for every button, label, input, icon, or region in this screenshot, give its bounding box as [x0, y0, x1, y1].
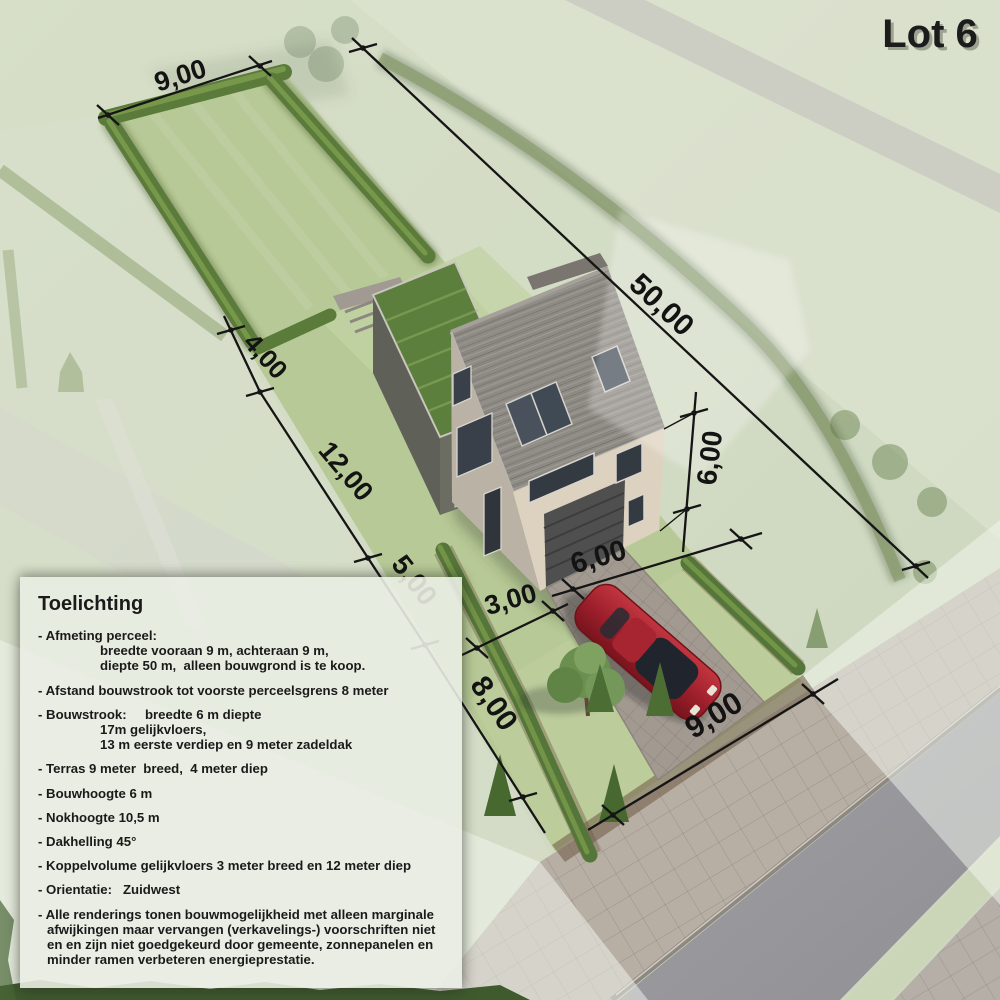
legend-item-terras: - Terras 9 meter breed, 4 meter diep — [38, 761, 444, 776]
dim-label-building-height: 6,00 — [691, 429, 728, 487]
legend-line: - Bouwstrook: breedte 6 m diepte — [38, 707, 444, 722]
legend-line: - Orientatie: Zuidwest — [38, 882, 444, 897]
legend-item-bouwhoogte: - Bouwhoogte 6 m — [38, 786, 444, 801]
legend-line: - Afstand bouwstrook tot voorste perceel… — [38, 683, 444, 698]
info-box-title: Toelichting — [38, 593, 444, 615]
legend-line: - Bouwhoogte 6 m — [38, 786, 444, 801]
legend-line: - Dakhelling 45° — [38, 834, 444, 849]
legend-line: 17m gelijkvloers, — [100, 722, 444, 737]
legend-item-orientatie: - Orientatie: Zuidwest — [38, 882, 444, 897]
legend-item-dakhelling: - Dakhelling 45° — [38, 834, 444, 849]
legend-item-bouwstrook: - Bouwstrook: breedte 6 m diepte 17m gel… — [38, 707, 444, 753]
door-left — [484, 487, 501, 556]
legend-item-nokhoogte: - Nokhoogte 10,5 m — [38, 810, 444, 825]
legend-item-afstand: - Afstand bouwstrook tot voorste perceel… — [38, 683, 444, 698]
legend-line: - Nokhoogte 10,5 m — [38, 810, 444, 825]
legend-line: - Koppelvolume gelijkvloers 3 meter bree… — [38, 858, 444, 873]
legend-item-afmeting: - Afmeting perceel: breedte vooraan 9 m,… — [38, 628, 444, 674]
legend-line: - Alle renderings tonen bouwmogelijkheid… — [38, 907, 444, 968]
legend-line: - Terras 9 meter breed, 4 meter diep — [38, 761, 444, 776]
site-plan-rendering: 9,00 50,00 4,00 12,00 5,00 8,00 6,00 6,0… — [0, 0, 1000, 1000]
legend-line: 13 m eerste verdiep en 9 meter zadeldak — [100, 737, 444, 752]
legend-line: diepte 50 m, alleen bouwgrond is te koop… — [100, 658, 444, 673]
info-box: Toelichting - Afmeting perceel: breedte … — [20, 577, 462, 988]
lot-title: Lot 6 — [882, 12, 978, 56]
legend-item-koppelvolume: - Koppelvolume gelijkvloers 3 meter bree… — [38, 858, 444, 873]
legend-line: breedte vooraan 9 m, achteraan 9 m, — [100, 643, 444, 658]
legend-item-disclaimer: - Alle renderings tonen bouwmogelijkheid… — [38, 907, 444, 968]
legend-line: - Afmeting perceel: — [38, 628, 444, 643]
